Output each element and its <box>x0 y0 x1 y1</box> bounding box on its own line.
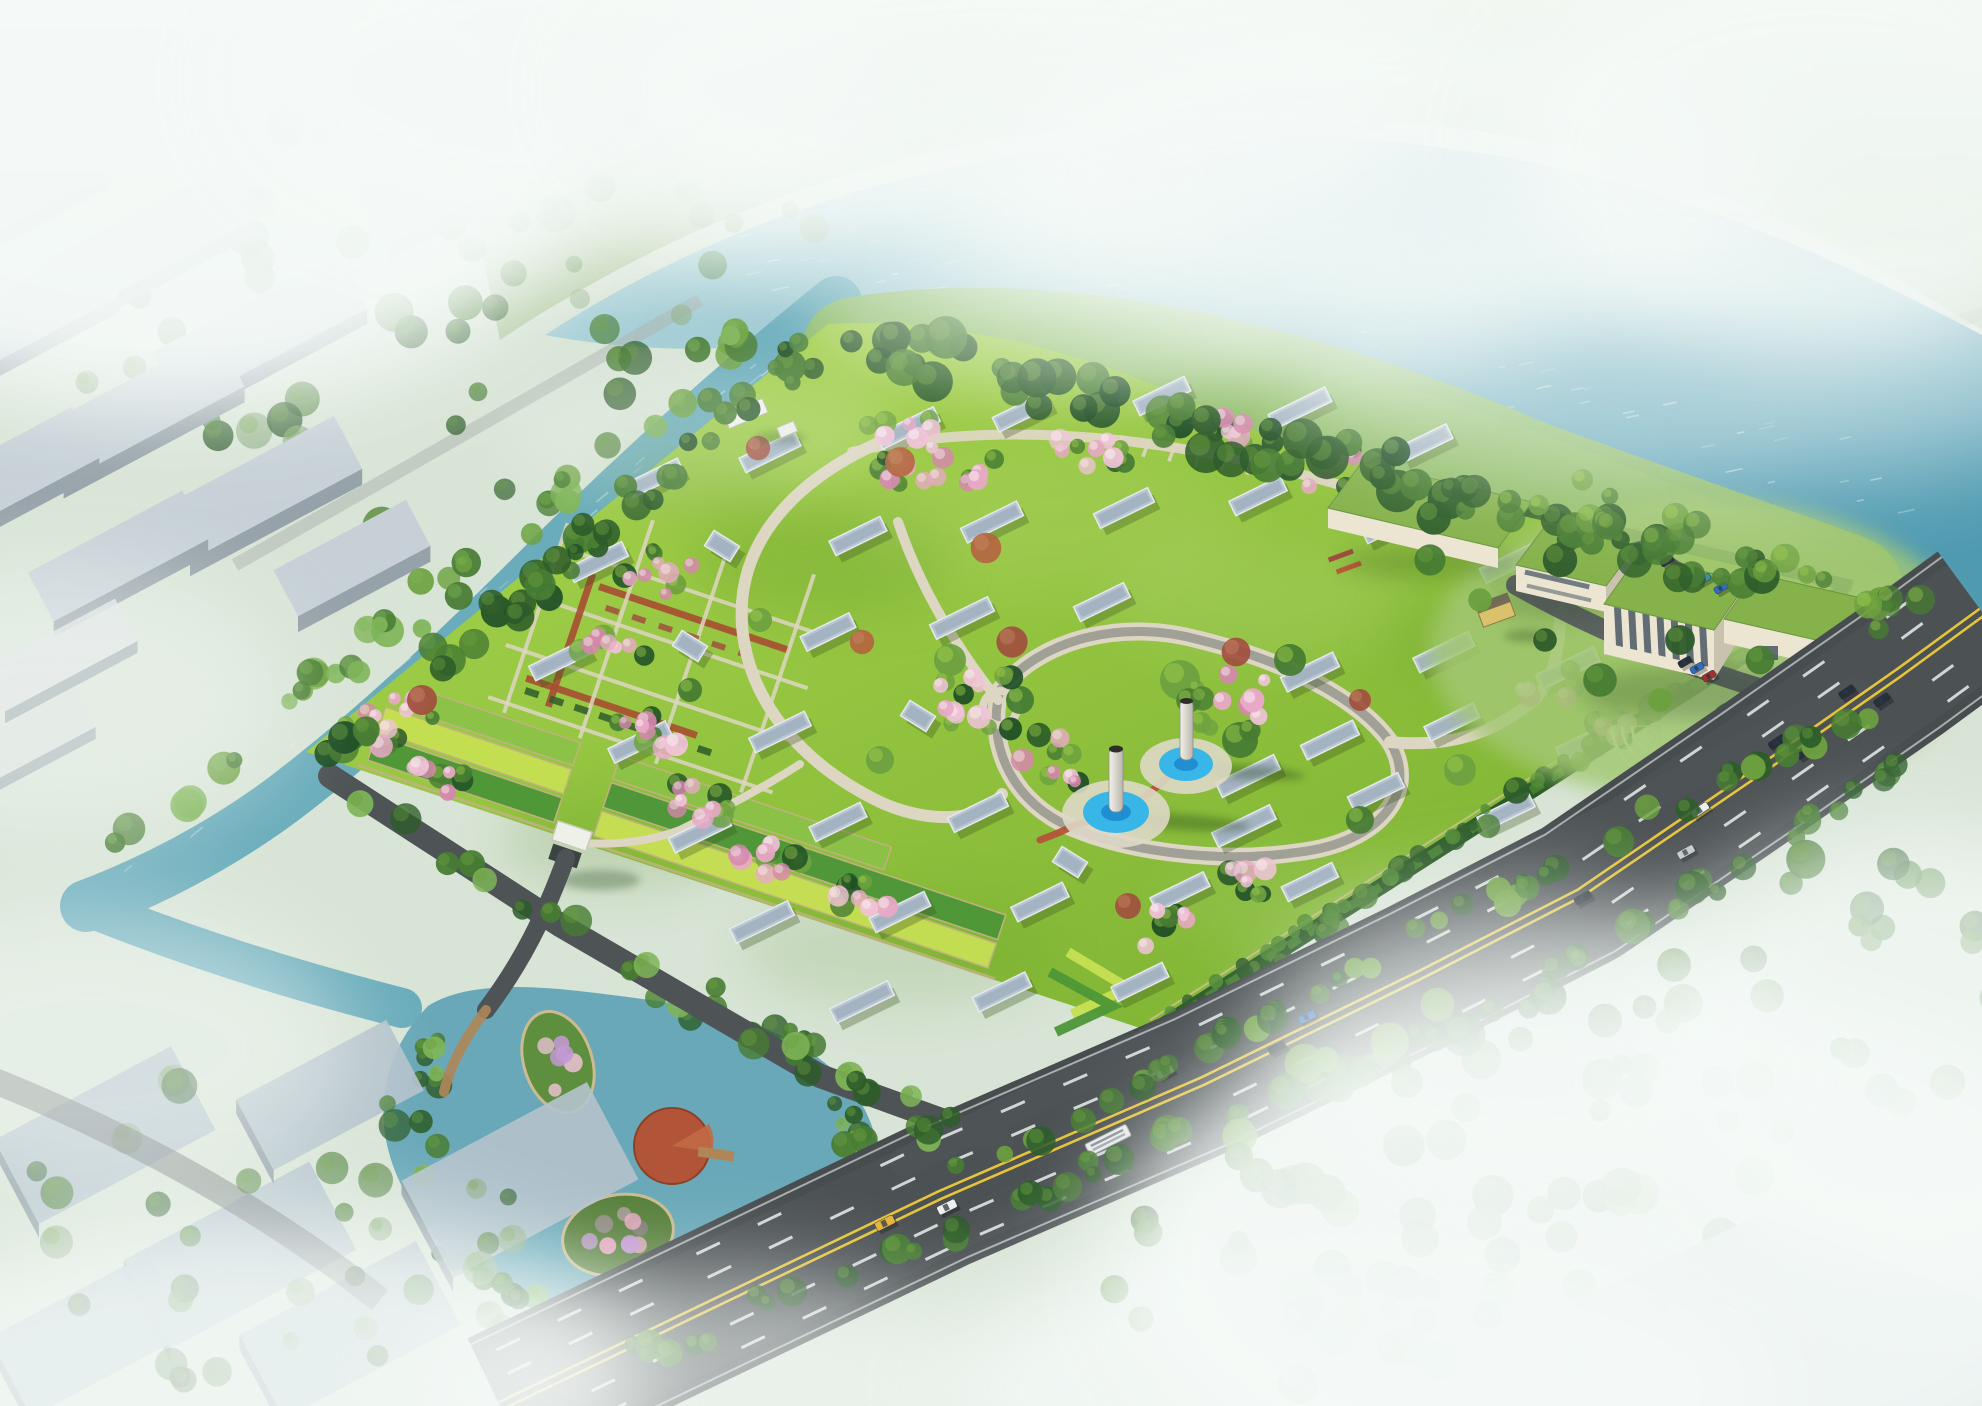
tree-highlight <box>393 806 409 822</box>
tree-highlight <box>609 348 622 361</box>
tree-highlight <box>390 693 396 699</box>
tree-highlight <box>415 621 424 630</box>
tree-highlight <box>462 631 477 646</box>
tree <box>1480 804 1490 814</box>
island-rock <box>595 1215 613 1233</box>
tree-highlight <box>1560 515 1578 533</box>
tree-highlight <box>935 679 943 687</box>
tree-highlight <box>1686 513 1700 527</box>
tree-highlight <box>332 724 348 740</box>
tree-highlight <box>1132 1076 1146 1090</box>
tree-highlight <box>571 641 583 653</box>
tree <box>550 1048 569 1067</box>
tree-highlight <box>508 604 523 619</box>
tree-highlight <box>1029 1129 1044 1144</box>
tree-highlight <box>337 1204 346 1213</box>
tree <box>1382 868 1400 886</box>
tree-highlight <box>1241 721 1252 732</box>
tree-highlight <box>945 1218 959 1232</box>
tree-highlight <box>1603 489 1611 497</box>
tree-highlight <box>1154 426 1166 438</box>
tree-highlight <box>1087 1167 1095 1175</box>
tree-highlight <box>1355 885 1368 898</box>
tree-highlight <box>1489 879 1502 892</box>
tree-highlight <box>1479 816 1491 828</box>
tree-highlight <box>848 1072 858 1082</box>
tree-highlight <box>410 687 425 702</box>
tree-highlight <box>852 891 860 899</box>
tree-highlight <box>425 1038 436 1049</box>
tree-highlight <box>1908 587 1923 602</box>
tree-highlight <box>902 1087 913 1098</box>
tree-highlight <box>1471 590 1483 602</box>
tree-highlight <box>1225 640 1239 654</box>
tree-highlight <box>1009 688 1023 702</box>
tree-highlight <box>937 646 953 662</box>
tree-highlight <box>1857 593 1871 607</box>
tree-highlight <box>1579 506 1593 520</box>
tree-highlight <box>1070 776 1076 782</box>
tree-highlight <box>1013 750 1025 762</box>
tree-highlight <box>370 710 376 716</box>
tree-highlight <box>969 707 981 719</box>
vent-tower <box>1180 700 1193 760</box>
tree-highlight <box>639 569 646 576</box>
tree-highlight <box>1118 895 1131 908</box>
tree-highlight <box>837 1118 844 1125</box>
tree-highlight <box>1170 394 1184 408</box>
tree-highlight <box>1714 569 1723 578</box>
tree-highlight <box>1679 874 1696 891</box>
tree-highlight <box>1789 830 1798 839</box>
tree-highlight <box>1244 692 1255 703</box>
tree <box>624 1213 641 1230</box>
tree-highlight <box>904 418 911 425</box>
tree-highlight <box>1737 548 1748 559</box>
tree-highlight <box>942 1108 952 1118</box>
tree-highlight <box>1606 829 1622 845</box>
tree-highlight <box>1080 458 1089 467</box>
tree-highlight <box>602 636 610 644</box>
tree-highlight <box>1536 630 1548 642</box>
tree-highlight <box>1217 444 1235 462</box>
tree-highlight <box>569 545 577 553</box>
tree-highlight <box>636 719 643 726</box>
tree-highlight <box>853 1128 867 1142</box>
tree-highlight <box>1665 505 1679 519</box>
tree-highlight <box>907 1244 916 1253</box>
tree <box>1530 773 1545 788</box>
tree-highlight <box>1530 496 1540 506</box>
tree-highlight <box>686 779 694 787</box>
tree-highlight <box>1254 451 1271 468</box>
tree-highlight <box>775 864 784 873</box>
tree <box>599 1237 616 1254</box>
rendering-stage <box>0 0 1982 1406</box>
tree-highlight <box>1637 797 1650 810</box>
tree-highlight <box>430 1067 438 1075</box>
tree-highlight <box>294 683 303 692</box>
tree-highlight <box>758 865 768 875</box>
tree-highlight <box>1773 546 1788 561</box>
tree-highlight <box>1149 398 1167 416</box>
tree-highlight <box>653 558 659 564</box>
tree-highlight <box>1879 587 1892 600</box>
tree-highlight <box>852 632 864 644</box>
tree-highlight <box>676 795 682 801</box>
tree-highlight <box>1101 434 1109 442</box>
tree-highlight <box>636 647 646 657</box>
tree-highlight <box>888 449 903 464</box>
tree-highlight <box>1351 691 1362 702</box>
tree-highlight <box>1443 479 1454 490</box>
tree-highlight <box>596 522 610 536</box>
tree-highlight <box>357 618 371 632</box>
tree-highlight <box>1447 756 1463 772</box>
tree-highlight <box>1517 878 1528 889</box>
tree-highlight <box>514 901 524 911</box>
tree-highlight <box>1418 547 1434 563</box>
tree-highlight <box>1080 1152 1090 1162</box>
tree-highlight <box>271 405 289 423</box>
tree-highlight <box>623 639 631 647</box>
tree-highlight <box>440 568 451 579</box>
tree-highlight <box>1139 939 1147 947</box>
tree-highlight <box>1215 693 1224 702</box>
tree-highlight <box>501 1227 515 1241</box>
tree-highlight <box>862 900 871 909</box>
tree-highlight <box>373 618 381 626</box>
tree-highlight <box>878 897 889 908</box>
tree-highlight <box>558 491 571 504</box>
tree-highlight <box>923 421 933 431</box>
tree-highlight <box>723 327 733 337</box>
tree-highlight <box>838 1266 850 1278</box>
tree-highlight <box>1644 528 1659 543</box>
tree-highlight <box>574 515 586 527</box>
tree-highlight <box>583 637 592 646</box>
tree <box>1288 925 1300 937</box>
tree-highlight <box>661 589 667 595</box>
tree-highlight <box>319 1154 335 1170</box>
tree-highlight <box>1071 440 1079 448</box>
vent-tower-top <box>1180 698 1193 704</box>
tree-highlight <box>471 384 480 393</box>
tree-highlight <box>730 846 741 857</box>
tree-highlight <box>1500 492 1512 504</box>
tree-highlight <box>939 701 947 709</box>
tree-highlight <box>456 766 465 775</box>
tree-highlight <box>1860 710 1871 721</box>
tree-highlight <box>1420 503 1437 520</box>
tree-highlight <box>917 1118 932 1133</box>
tree-highlight <box>785 1034 799 1048</box>
tree <box>621 1238 634 1251</box>
tree-highlight <box>1718 771 1729 782</box>
tree-highlight <box>741 1030 757 1046</box>
tree-highlight <box>847 1107 856 1116</box>
tree-highlight <box>350 662 361 673</box>
tree-highlight <box>1261 420 1273 432</box>
tree-highlight <box>624 572 631 579</box>
tree-highlight <box>1048 766 1055 773</box>
tree-highlight <box>1178 908 1184 914</box>
aerial-rendering <box>0 0 1982 1406</box>
tree-highlight <box>539 492 552 505</box>
tree-highlight <box>708 979 718 989</box>
tree-highlight <box>1886 755 1898 767</box>
tree-highlight <box>1403 471 1419 487</box>
tree-highlight <box>667 734 679 746</box>
tree-highlight <box>998 1147 1006 1155</box>
tree <box>1468 821 1478 831</box>
tree-highlight <box>1089 441 1098 450</box>
tree-highlight <box>528 572 543 587</box>
tree-highlight <box>448 584 462 598</box>
vent-tower-top <box>1109 746 1123 753</box>
tree-highlight <box>481 592 494 605</box>
tree-highlight <box>1587 666 1604 683</box>
tree-highlight <box>1073 1110 1086 1123</box>
tree-highlight <box>428 1136 440 1148</box>
tree-highlight <box>969 471 979 481</box>
tree-highlight <box>1000 629 1016 645</box>
tree-highlight <box>1216 1024 1226 1034</box>
tree-highlight <box>685 559 693 567</box>
tree-highlight <box>1189 435 1210 456</box>
tree-highlight <box>660 564 670 574</box>
tree-highlight <box>674 782 682 790</box>
tree-highlight <box>927 442 933 448</box>
tree <box>1325 903 1340 918</box>
tree-highlight <box>1749 648 1763 662</box>
tree-highlight <box>859 876 866 883</box>
tree-highlight <box>784 1024 792 1032</box>
tree-highlight <box>1817 572 1826 581</box>
tree-highlight <box>829 1097 836 1104</box>
tree-highlight <box>750 610 762 622</box>
tree-highlight <box>1252 888 1260 896</box>
tree-highlight <box>1800 567 1809 576</box>
tree-highlight <box>1164 663 1184 683</box>
tree-highlight <box>1235 415 1245 425</box>
tree-highlight <box>1710 884 1719 893</box>
tree-highlight <box>349 792 362 805</box>
tree-highlight <box>869 748 883 762</box>
tree-highlight <box>1065 770 1073 778</box>
tree-highlight <box>1582 532 1594 544</box>
tree-highlight <box>1668 627 1683 642</box>
tree-highlight <box>563 907 579 923</box>
tree-highlight <box>1056 1174 1071 1189</box>
tree-highlight <box>764 1016 778 1030</box>
tree-highlight <box>694 809 705 820</box>
tree-highlight <box>1101 1090 1114 1103</box>
tree-highlight <box>1256 859 1267 870</box>
tree-highlight <box>1743 757 1755 769</box>
tree-highlight <box>381 1097 389 1105</box>
tree <box>1209 974 1223 988</box>
tree-highlight <box>380 721 390 731</box>
tree-highlight <box>986 451 996 461</box>
tree-highlight <box>710 785 722 797</box>
tree-highlight <box>648 546 656 554</box>
tree-highlight <box>1349 808 1363 822</box>
tree-highlight <box>328 665 338 675</box>
tree-highlight <box>949 1158 958 1167</box>
tree-highlight <box>412 1112 424 1124</box>
tree-highlight <box>1802 805 1812 815</box>
tree-highlight <box>1777 744 1789 756</box>
tree-highlight <box>441 785 449 793</box>
tree-highlight <box>1831 803 1840 812</box>
tree-highlight <box>917 473 926 482</box>
gate-shadow <box>560 870 640 890</box>
vent-tower <box>1109 748 1123 812</box>
tree-highlight <box>1731 570 1746 585</box>
tree-highlight <box>523 525 534 536</box>
tree-highlight <box>468 1180 478 1190</box>
tree-highlight <box>401 703 409 711</box>
tree-highlight <box>410 570 423 583</box>
tree-highlight <box>1052 730 1062 740</box>
tree-highlight <box>1303 479 1311 487</box>
tree-highlight <box>421 635 435 649</box>
tree-highlight <box>636 954 649 967</box>
tree-highlight <box>1870 620 1880 630</box>
tree-highlight <box>457 557 465 565</box>
tree-highlight <box>955 686 965 696</box>
tree <box>1297 914 1313 930</box>
tree-highlight <box>461 852 474 865</box>
tree-highlight <box>1197 1035 1212 1050</box>
tree-highlight <box>382 1112 398 1128</box>
tree-highlight <box>1372 466 1385 479</box>
tree-highlight <box>1242 876 1248 882</box>
tree-highlight <box>1259 675 1265 681</box>
tree <box>1410 845 1428 863</box>
tree-highlight <box>438 854 450 866</box>
tree-highlight <box>299 661 312 674</box>
tree-highlight <box>1318 924 1326 932</box>
tree-highlight <box>475 870 487 882</box>
tree-highlight <box>1539 867 1549 877</box>
tree-highlight <box>444 767 450 773</box>
tree-highlight <box>1834 711 1849 726</box>
tree-highlight <box>620 717 626 723</box>
tree-highlight <box>546 548 560 562</box>
tree-highlight <box>1802 728 1813 739</box>
tree-highlight <box>1064 746 1074 756</box>
tree-highlight <box>834 1133 847 1146</box>
tree-highlight <box>965 669 974 678</box>
tree <box>548 1084 561 1097</box>
tree-highlight <box>1193 714 1203 724</box>
tree-highlight <box>240 415 258 433</box>
tree <box>1445 829 1461 845</box>
tree-highlight <box>974 535 989 550</box>
tree <box>537 1037 554 1054</box>
tree <box>581 1233 597 1249</box>
tree-highlight <box>1785 727 1799 741</box>
tree-highlight <box>1670 900 1681 911</box>
tree-highlight <box>611 715 620 724</box>
tree-highlight <box>1286 422 1306 442</box>
tree-highlight <box>688 339 701 352</box>
tree-highlight <box>1105 449 1115 459</box>
tree-highlight <box>1599 513 1613 527</box>
tree-highlight <box>1678 800 1690 812</box>
tree-highlight <box>805 359 816 370</box>
tree-highlight <box>362 1165 379 1182</box>
tree-highlight <box>1029 725 1041 737</box>
tree-highlight <box>779 342 787 350</box>
tree-highlight <box>1051 430 1062 441</box>
tree-highlight <box>1151 904 1159 912</box>
tree-highlight <box>1755 561 1767 573</box>
tree-highlight <box>1621 545 1639 563</box>
tree-highlight <box>355 719 368 732</box>
tree-highlight <box>448 417 458 427</box>
tree-highlight <box>758 845 768 855</box>
tree-highlight <box>996 668 1005 677</box>
fog-patch <box>810 260 1290 400</box>
tree-highlight <box>622 962 632 972</box>
tree-highlight <box>1107 1146 1123 1162</box>
tree <box>1260 944 1277 961</box>
tree-highlight <box>830 887 841 898</box>
tree-highlight <box>785 846 798 859</box>
tree-highlight <box>496 480 507 491</box>
tree-highlight <box>1193 688 1205 700</box>
tree-highlight <box>1194 408 1209 423</box>
tree-highlight <box>1875 770 1887 782</box>
tree-highlight <box>1733 856 1746 869</box>
tree-highlight <box>1845 781 1855 791</box>
tree-highlight <box>1226 862 1234 870</box>
tree-highlight <box>433 657 446 670</box>
tree-highlight <box>1651 690 1663 702</box>
tree-highlight <box>360 705 370 715</box>
tree-highlight <box>411 757 421 767</box>
tree-highlight <box>680 680 692 692</box>
tree-highlight <box>791 334 801 344</box>
tree-highlight <box>843 875 851 883</box>
tree-highlight <box>543 903 553 913</box>
tree-highlight <box>1221 667 1230 676</box>
fog-patch <box>500 360 900 500</box>
tree-highlight <box>1277 646 1293 662</box>
tree-highlight <box>1020 1182 1033 1195</box>
tree-highlight <box>1001 719 1012 730</box>
tree-highlight <box>1666 565 1681 580</box>
tree-highlight <box>1160 1056 1170 1066</box>
tree-highlight <box>501 1190 510 1199</box>
tree-highlight <box>1506 779 1519 792</box>
tree-highlight <box>885 1236 900 1251</box>
fog-patch <box>1260 890 1780 1210</box>
tree-highlight <box>1461 477 1478 494</box>
